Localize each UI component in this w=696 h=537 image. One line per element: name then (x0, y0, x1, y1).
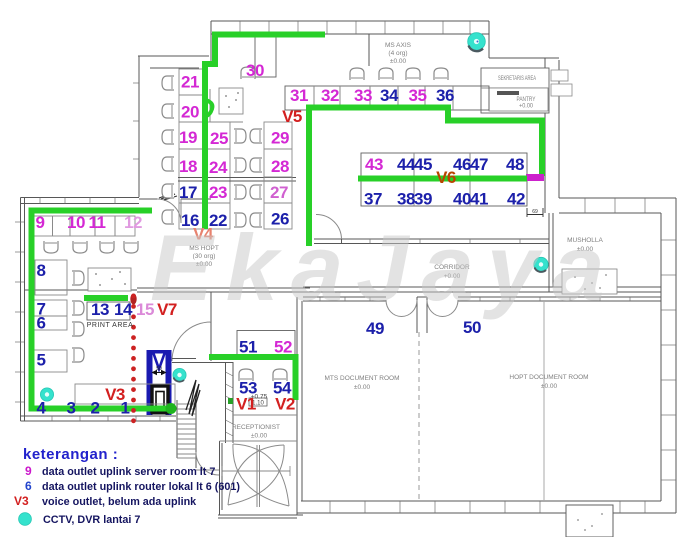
svg-text:PRINT AREA: PRINT AREA (87, 322, 134, 329)
svg-text:35: 35 (409, 86, 427, 105)
svg-text:24: 24 (209, 158, 228, 177)
svg-text:23: 23 (209, 183, 227, 202)
svg-text:V2: V2 (275, 395, 295, 414)
svg-text:47: 47 (470, 155, 488, 174)
svg-text:40: 40 (453, 190, 471, 209)
svg-text:3: 3 (67, 399, 76, 418)
svg-text:45: 45 (414, 155, 432, 174)
svg-text:25: 25 (210, 129, 228, 148)
svg-text:V3: V3 (14, 494, 29, 508)
svg-text:+0.00: +0.00 (519, 103, 533, 110)
svg-text:52: 52 (274, 338, 292, 357)
svg-text:36: 36 (436, 86, 454, 105)
svg-text:8: 8 (37, 261, 46, 280)
svg-text:34: 34 (380, 86, 399, 105)
svg-text:9: 9 (25, 464, 32, 478)
svg-text:18: 18 (179, 157, 197, 176)
svg-text:data outlet uplink router loka: data outlet uplink router lokal lt 6 (60… (42, 481, 240, 493)
svg-text:32: 32 (321, 86, 339, 105)
svg-text:49: 49 (366, 319, 384, 338)
svg-text:9: 9 (36, 213, 45, 232)
svg-text:17: 17 (179, 183, 197, 202)
svg-text:42: 42 (507, 190, 525, 209)
svg-text:37: 37 (364, 190, 382, 209)
svg-text:(4 org): (4 org) (388, 50, 407, 57)
svg-text:V1: V1 (236, 395, 256, 414)
svg-text:33: 33 (354, 86, 372, 105)
svg-text:V6: V6 (436, 168, 456, 187)
svg-text:10: 10 (67, 213, 85, 232)
svg-text:31: 31 (290, 86, 308, 105)
svg-text:19: 19 (179, 128, 197, 147)
svg-text:6: 6 (37, 314, 46, 333)
svg-text:voice outlet, belum ada uplink: voice outlet, belum ada uplink (42, 496, 197, 508)
svg-text:41: 41 (470, 190, 488, 209)
svg-text:MS AXIS: MS AXIS (385, 42, 412, 49)
svg-text:CCTV, DVR lantai 7: CCTV, DVR lantai 7 (43, 514, 140, 526)
svg-text:28: 28 (271, 157, 289, 176)
svg-text:6: 6 (25, 479, 32, 493)
svg-text:±0.00: ±0.00 (354, 384, 371, 391)
svg-text:12: 12 (124, 213, 142, 232)
svg-text:38: 38 (397, 190, 415, 209)
svg-text:48: 48 (506, 155, 524, 174)
svg-text:4: 4 (37, 399, 47, 418)
svg-text:MTS DOCUMENT ROOM: MTS DOCUMENT ROOM (325, 375, 400, 382)
svg-text:RECEPTIONIST: RECEPTIONIST (232, 424, 280, 431)
svg-text:SEKRETARIS AREA: SEKRETARIS AREA (498, 75, 536, 82)
svg-text:EkaJaya: EkaJaya (150, 215, 617, 320)
svg-text:V5: V5 (282, 107, 302, 126)
svg-text:keterangan :: keterangan : (23, 446, 118, 463)
svg-text:5: 5 (37, 351, 46, 370)
svg-text:39: 39 (414, 190, 432, 209)
svg-text:HOPT DOCUMENT ROOM: HOPT DOCUMENT ROOM (509, 374, 588, 381)
svg-text:50: 50 (156, 366, 162, 372)
svg-text:V3: V3 (105, 385, 125, 404)
svg-text:20: 20 (181, 103, 199, 122)
svg-text:27: 27 (270, 183, 288, 202)
svg-text:43: 43 (365, 155, 383, 174)
svg-text:±0.00: ±0.00 (541, 383, 558, 390)
svg-text:14: 14 (114, 300, 133, 319)
svg-text:13: 13 (91, 300, 109, 319)
svg-text:50: 50 (463, 318, 481, 337)
svg-text:21: 21 (181, 73, 199, 92)
svg-text:±0.00: ±0.00 (251, 433, 268, 440)
svg-text:data outlet uplink server room: data outlet uplink server room lt 7 (42, 466, 215, 478)
svg-text:29: 29 (271, 129, 289, 148)
svg-text:±0.00: ±0.00 (390, 58, 407, 65)
svg-text:51: 51 (239, 338, 257, 357)
svg-text:2: 2 (91, 399, 100, 418)
svg-text:30: 30 (246, 61, 264, 80)
svg-text:11: 11 (89, 213, 106, 232)
